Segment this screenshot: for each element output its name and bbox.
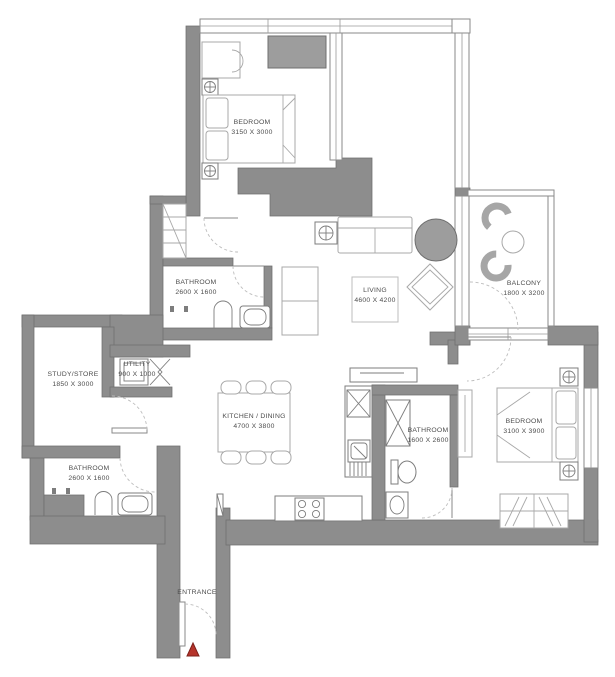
- room-label-bathroom-1: BATHROOM 2600 X 1600: [175, 278, 216, 298]
- room-label-utility: UTILITY 900 X 1000: [118, 360, 155, 380]
- room-label-bedroom-1: BEDROOM 3150 X 3000: [231, 118, 272, 138]
- pillow: [556, 391, 576, 424]
- room-name: BATHROOM: [175, 278, 216, 288]
- room-dims: 3100 X 3900: [503, 427, 544, 437]
- room-name: BATHROOM: [407, 426, 448, 436]
- coffee-table-gray: [415, 219, 457, 261]
- room-name: UTILITY: [118, 360, 155, 370]
- room-dims: 2600 X 1600: [68, 474, 109, 484]
- wall-bedroom1-left: [186, 26, 200, 216]
- hall-cabinet: [350, 368, 417, 382]
- dining-chair: [246, 381, 266, 394]
- wall-study-right: [102, 327, 114, 397]
- toilet: [214, 301, 232, 328]
- pillow: [206, 98, 228, 128]
- bathroom1-fixtures: [170, 301, 270, 328]
- desk: [202, 42, 240, 78]
- living-furniture: [282, 217, 457, 335]
- wall-bathroom3-left: [372, 385, 385, 520]
- wall-utility-bottom: [110, 387, 172, 397]
- room-dims: 1800 X 3200: [503, 289, 544, 299]
- room-name: ENTRANCE: [177, 588, 216, 598]
- room-name: BATHROOM: [68, 464, 109, 474]
- door-arc-bathroom3: [422, 488, 452, 518]
- window-corner-post: [452, 19, 470, 33]
- wall-utility-top: [110, 345, 190, 357]
- room-dims: 4700 X 3800: [222, 422, 285, 432]
- wall-study-left: [22, 315, 34, 458]
- balcony-chair: [484, 254, 508, 278]
- wall-study-top: [22, 315, 122, 327]
- bedroom2-furniture: [458, 368, 578, 528]
- room-name: BEDROOM: [231, 118, 272, 128]
- pillow: [206, 131, 228, 160]
- hall-closet: [163, 204, 186, 258]
- room-label-study-store: STUDY/STORE 1850 X 3000: [48, 370, 99, 390]
- room-label-bathroom-2: BATHROOM 2600 X 1600: [68, 464, 109, 484]
- room-dims: 1850 X 3000: [48, 380, 99, 390]
- bifold-door-utility: [158, 359, 170, 385]
- wall-bathroom2-left: [30, 448, 44, 520]
- walls: [22, 26, 598, 658]
- floor-plan-drawing: [0, 0, 615, 677]
- room-dims: 900 X 1000: [118, 370, 155, 380]
- tap-icon: [52, 488, 56, 494]
- wall-closet-left: [150, 196, 163, 330]
- door-arc-bathroom2: [120, 458, 155, 492]
- room-dims: 2600 X 1600: [175, 288, 216, 298]
- door-arc-study: [112, 396, 147, 431]
- wall-bathroom1-bottom: [150, 328, 272, 340]
- dining-chair: [246, 451, 266, 464]
- balcony-chair: [485, 206, 508, 227]
- pillow: [556, 427, 576, 459]
- room-name: BEDROOM: [503, 417, 544, 427]
- room-dims: 3150 X 3000: [231, 128, 272, 138]
- floor-plan: BEDROOM 3150 X 3000 BATHROOM 2600 X 1600…: [0, 0, 615, 677]
- toilet-tank: [391, 460, 398, 484]
- dining-chair: [221, 451, 241, 464]
- room-label-living: LIVING 4600 X 4200: [354, 286, 395, 306]
- wall-bathroom3-top: [372, 385, 458, 395]
- room-name: KITCHEN / DINING: [222, 412, 285, 422]
- dining-chair: [271, 451, 291, 464]
- wall-balcony-elbow: [548, 326, 598, 345]
- toilet: [95, 492, 112, 516]
- tap-icon: [170, 306, 174, 312]
- armchair-diamond: [407, 264, 453, 310]
- wall-structural-core: [238, 158, 372, 216]
- balcony-rail-right: [548, 196, 554, 326]
- room-name: STUDY/STORE: [48, 370, 99, 380]
- door-leaf-study: [112, 428, 147, 433]
- wall-bottom-left: [30, 516, 165, 544]
- balcony-rail-top: [468, 190, 554, 196]
- wall-corridor-left: [157, 446, 180, 658]
- door-arc-bathroom1: [233, 266, 264, 297]
- door-arc-bedroom1: [204, 218, 238, 252]
- dining-chair: [221, 381, 241, 394]
- room-label-entrance: ENTRANCE: [177, 588, 216, 598]
- door-arc-bedroom2: [467, 337, 511, 381]
- room-name: BALCONY: [503, 279, 544, 289]
- room-dims: 4600 X 4200: [354, 296, 395, 306]
- room-label-bathroom-3: BATHROOM 1600 X 2600: [407, 426, 448, 446]
- room-label-kitchen-dining: KITCHEN / DINING 4700 X 3800: [222, 412, 285, 432]
- bathroom3-fixtures: [386, 400, 416, 518]
- room-label-bedroom-2: BEDROOM 3100 X 3900: [503, 417, 544, 437]
- room-dims: 1600 X 2600: [407, 436, 448, 446]
- door-leaf-entrance: [179, 602, 185, 646]
- balcony-furniture: [484, 206, 524, 278]
- wall-bathroom1-top: [163, 258, 233, 266]
- wall-closet-top: [150, 196, 186, 204]
- door-arc-entrance: [185, 604, 216, 635]
- wall-bathroom2-top: [22, 446, 120, 458]
- entrance-arrow-icon: [187, 643, 199, 656]
- room-name: LIVING: [354, 286, 395, 296]
- wall-bathroom3-right: [450, 395, 458, 487]
- tap-icon: [184, 306, 188, 312]
- dining-chair: [271, 381, 291, 394]
- room-label-balcony: BALCONY 1800 X 3200: [503, 279, 544, 299]
- bedroom1-furniture: [202, 36, 326, 179]
- balcony-table: [502, 231, 524, 253]
- wardrobe-gray: [268, 36, 326, 68]
- toilet-bowl: [398, 461, 416, 483]
- tap-icon: [66, 488, 70, 494]
